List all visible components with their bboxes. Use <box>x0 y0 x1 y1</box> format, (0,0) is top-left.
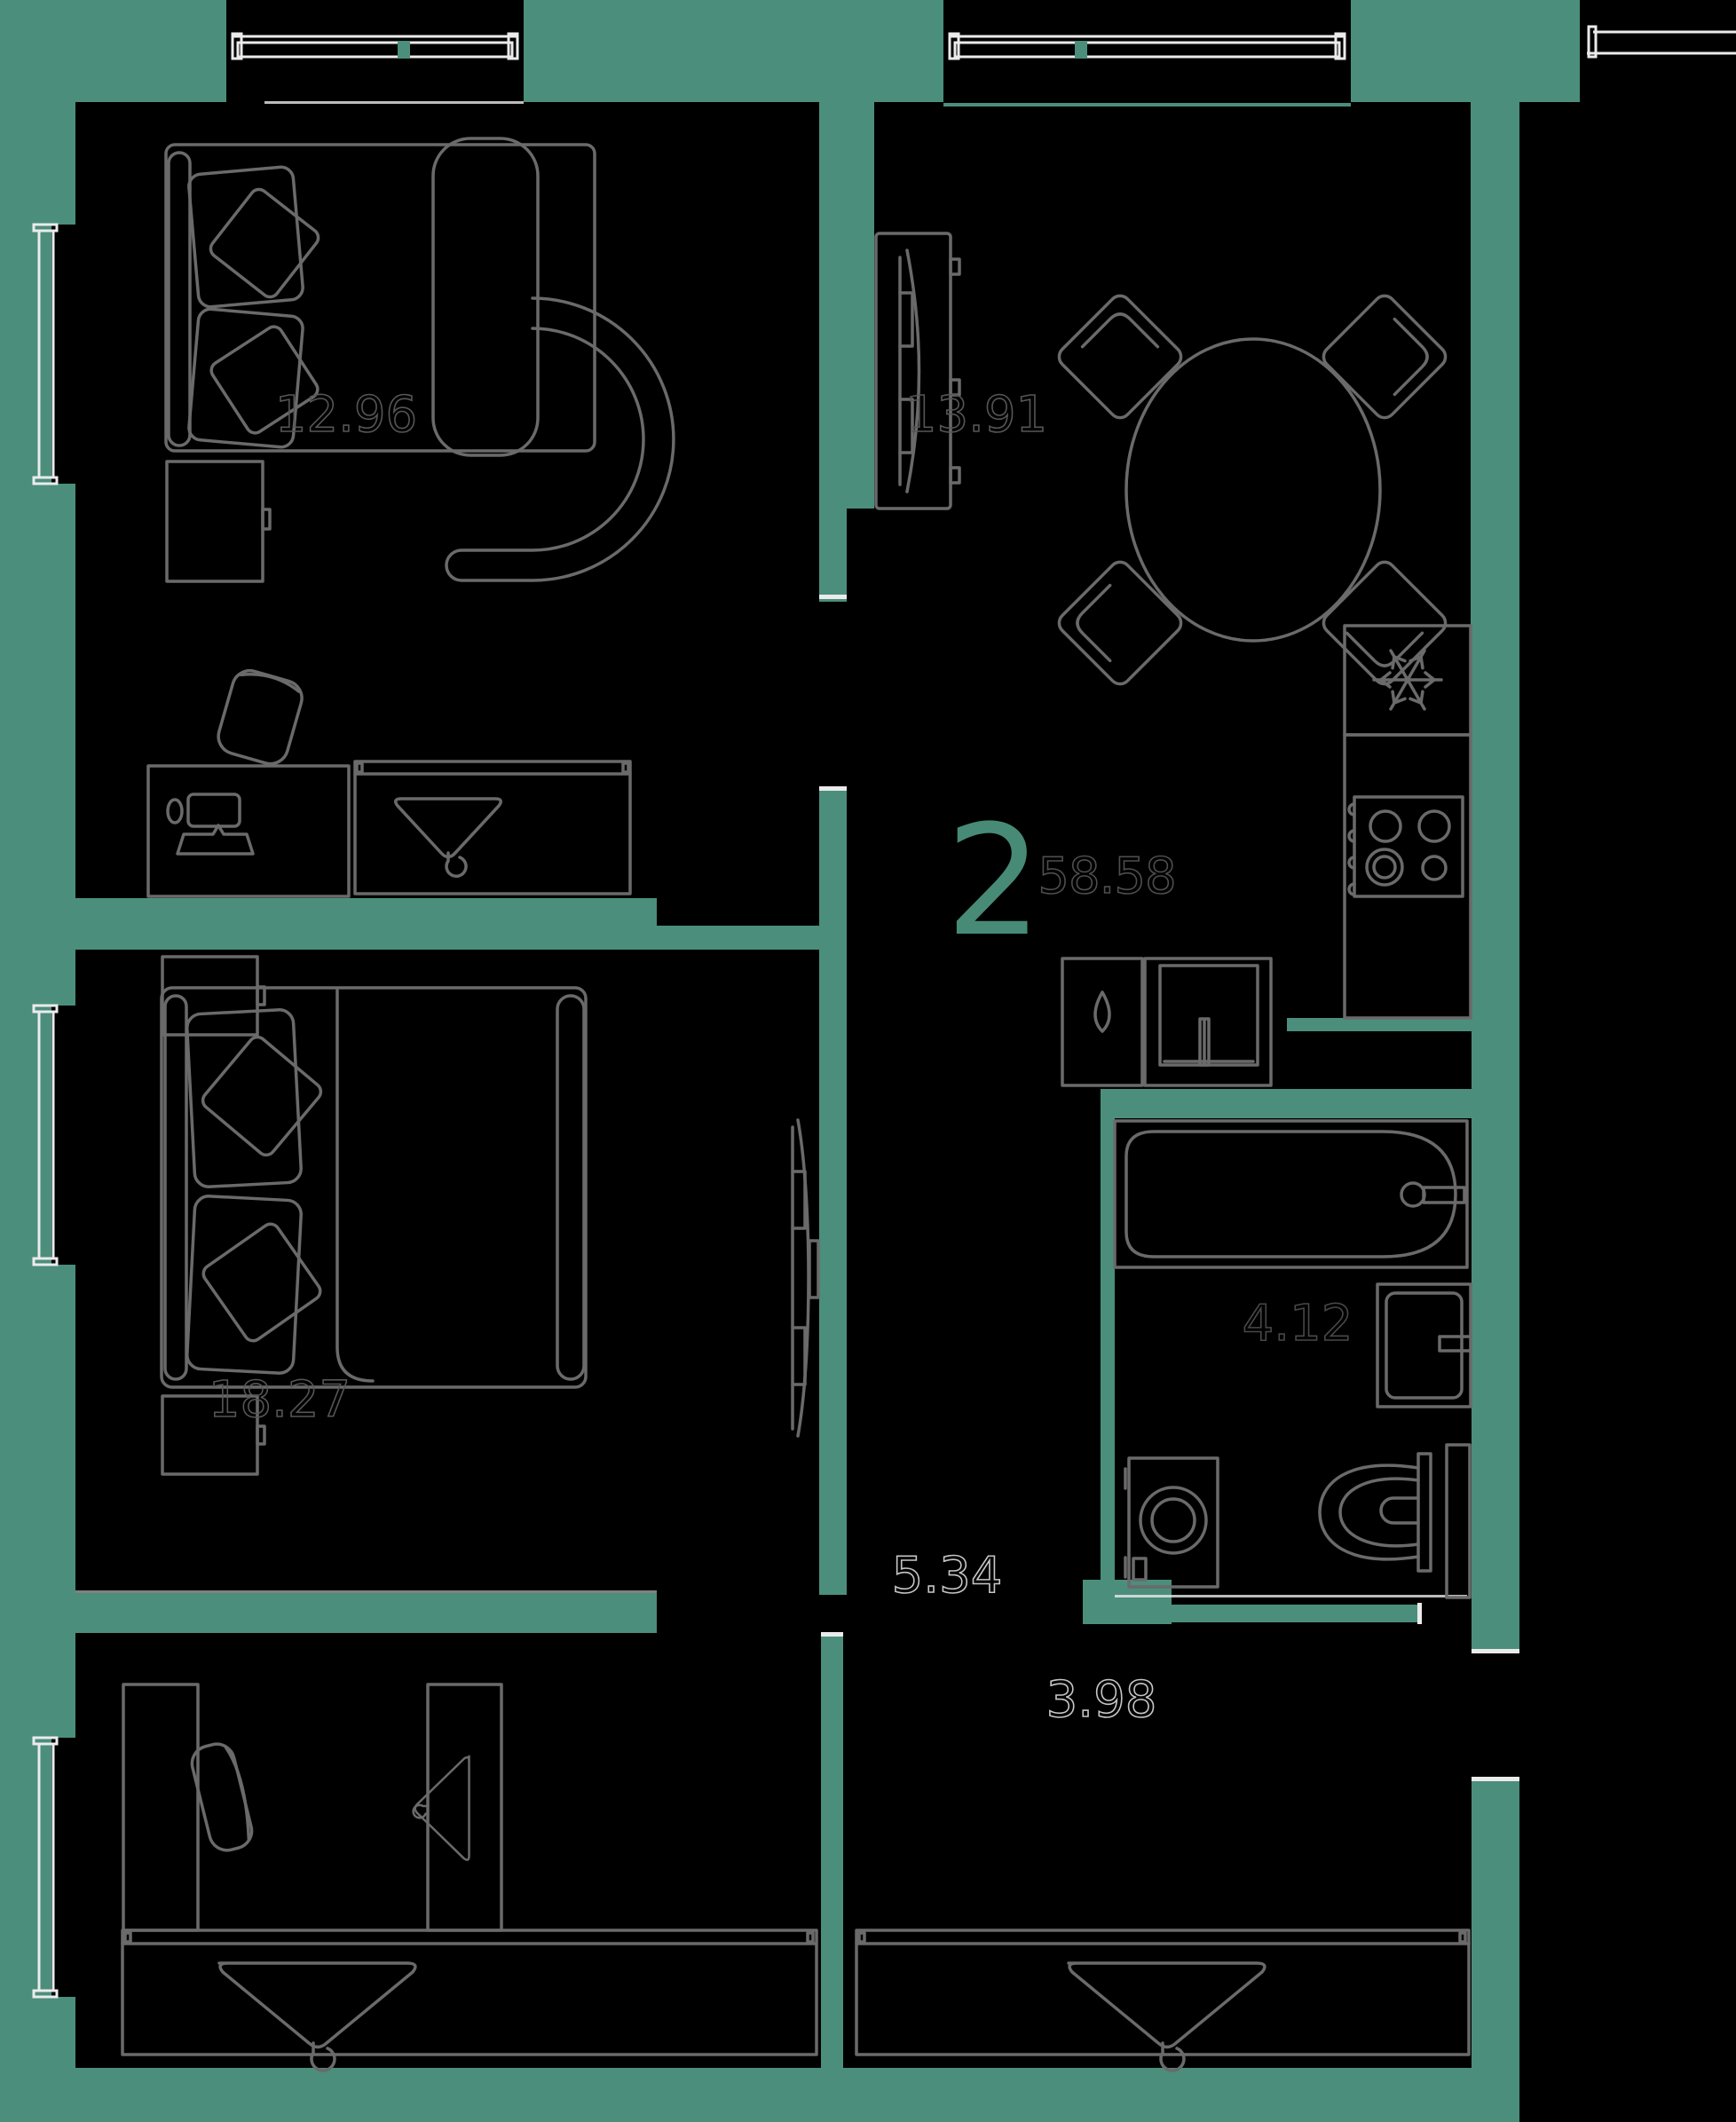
total-area-label: 58.58 <box>1038 852 1175 902</box>
area-label-bedroom-top: 12.96 <box>275 390 417 440</box>
entrance-door-gap <box>1472 1653 1519 1779</box>
room-bottom-left <box>75 1633 821 2068</box>
apartment-type-number: 2 <box>945 805 1042 958</box>
area-label-hallway: 5.34 <box>892 1551 1003 1601</box>
window-left-2 <box>34 1006 57 1265</box>
floor-areas <box>51 0 1736 2122</box>
area-label-bathroom: 4.12 <box>1243 1299 1353 1349</box>
area-label-kitchen-living: 13.91 <box>905 390 1047 440</box>
area-label-storage: 3.98 <box>1046 1676 1157 1725</box>
room-bedroom-top <box>75 102 819 898</box>
floor-plan: 12.96 13.91 18.27 4.12 5.34 3.98 2 58.58 <box>0 0 1736 2122</box>
window-left-1 <box>34 225 57 484</box>
neighbor-unit <box>1519 0 1736 2122</box>
floor-plan-graphics <box>0 0 1736 2122</box>
bathroom-door-gap <box>1420 1596 1472 1622</box>
balcony-window-right <box>943 0 1351 105</box>
window-left-3 <box>34 1738 57 1997</box>
balcony-window-left <box>226 0 524 105</box>
room-storage <box>843 1622 1472 2068</box>
bedroom-top-door-gap <box>817 602 852 790</box>
area-label-bedroom-main: 18.27 <box>209 1376 351 1425</box>
